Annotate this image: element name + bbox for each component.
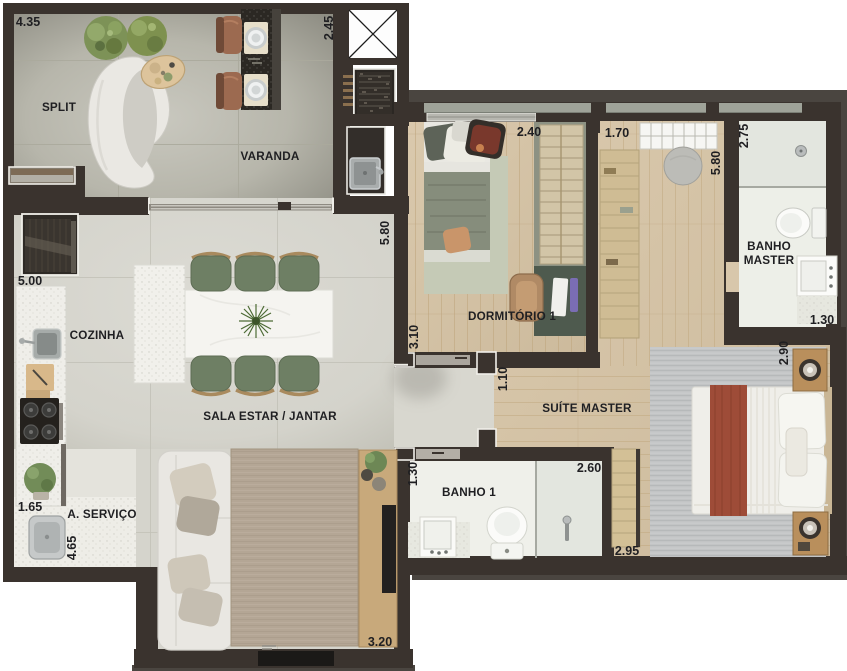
svg-text:5.00: 5.00: [18, 274, 42, 288]
svg-text:BANHO 1: BANHO 1: [442, 486, 496, 499]
svg-text:2.60: 2.60: [577, 461, 601, 475]
svg-text:A. SERVIÇO: A. SERVIÇO: [67, 508, 136, 521]
svg-text:5.80: 5.80: [378, 221, 392, 245]
svg-text:BANHO: BANHO: [747, 240, 791, 253]
svg-text:DORMITÓRIO 1: DORMITÓRIO 1: [468, 310, 556, 323]
svg-text:1.30: 1.30: [406, 462, 420, 486]
svg-text:2.75: 2.75: [737, 124, 751, 148]
svg-text:2.45: 2.45: [322, 16, 336, 40]
svg-text:SALA ESTAR / JANTAR: SALA ESTAR / JANTAR: [203, 410, 337, 423]
svg-text:2.90: 2.90: [777, 341, 791, 365]
svg-text:2.40: 2.40: [517, 125, 541, 139]
svg-text:VARANDA: VARANDA: [241, 150, 300, 163]
svg-text:SPLIT: SPLIT: [42, 101, 77, 114]
svg-text:2.95: 2.95: [615, 544, 639, 558]
svg-text:1.70: 1.70: [605, 126, 629, 140]
svg-text:1.10: 1.10: [496, 367, 510, 391]
svg-text:1.30: 1.30: [810, 313, 834, 327]
svg-text:3.10: 3.10: [407, 325, 421, 349]
svg-text:SUÍTE MASTER: SUÍTE MASTER: [542, 402, 632, 415]
svg-text:1.65: 1.65: [18, 500, 42, 514]
svg-text:5.80: 5.80: [709, 151, 723, 175]
svg-text:4.65: 4.65: [65, 536, 79, 560]
svg-text:3.20: 3.20: [368, 635, 392, 649]
svg-text:4.35: 4.35: [16, 15, 40, 29]
svg-text:MASTER: MASTER: [744, 254, 795, 267]
svg-text:COZINHA: COZINHA: [70, 329, 125, 342]
